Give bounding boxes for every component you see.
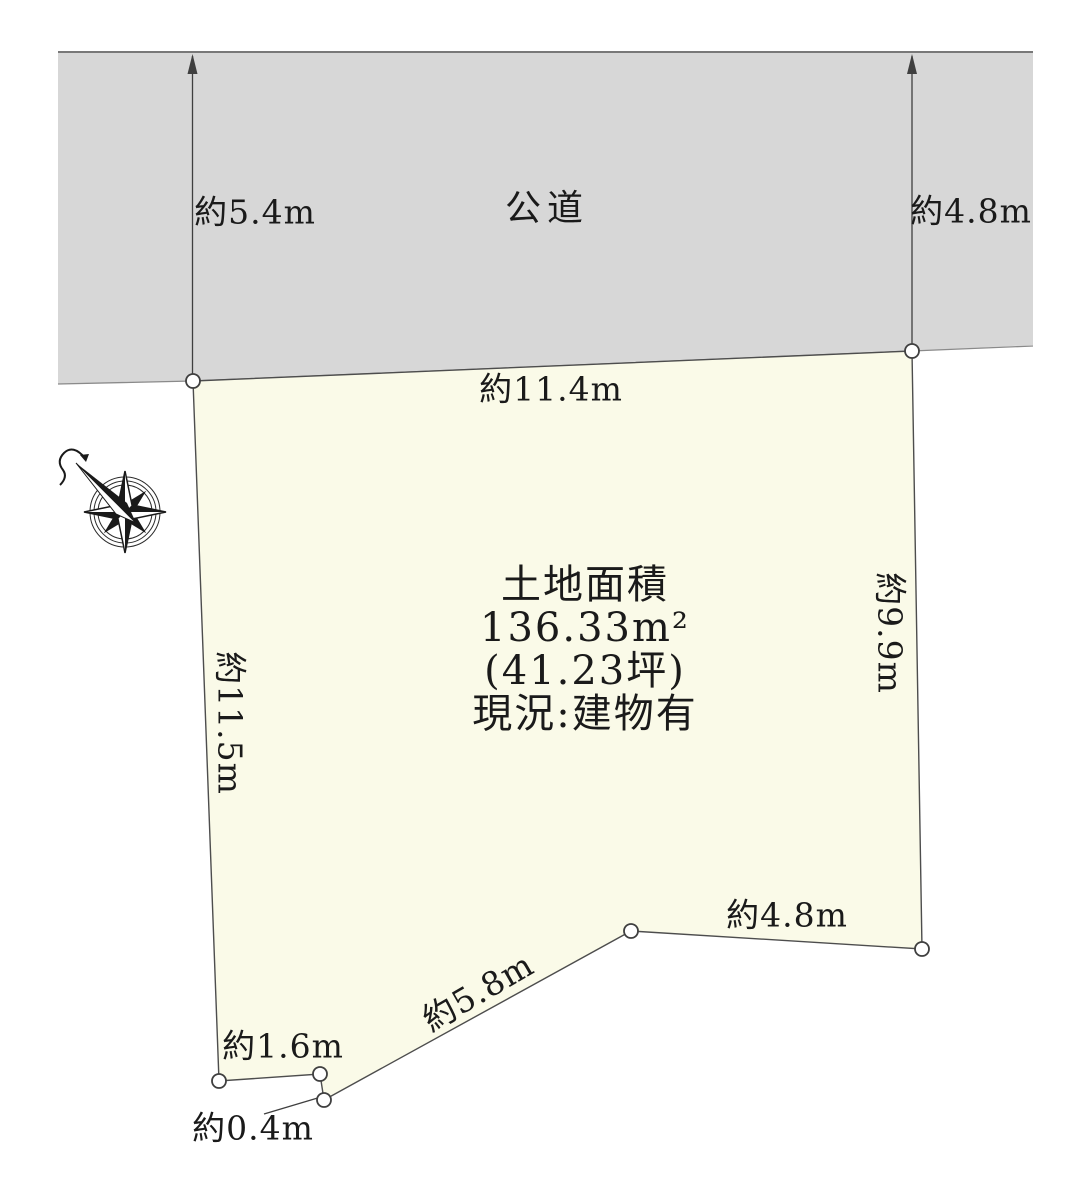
survey-point-icon: [317, 1093, 331, 1107]
survey-point-icon: [905, 344, 919, 358]
parcel-left-dimension-label: 約11.5m: [214, 651, 247, 795]
land-plot-diagram: 約5.4m 公道 約4.8m 約11.4m 約9.9m 約11.5m 約4.8m…: [0, 0, 1082, 1200]
parcel-bottom-left-dimension-label: 約1.6m: [222, 1030, 344, 1063]
survey-point-icon: [186, 374, 200, 388]
parcel-status: 現況:建物有: [472, 693, 697, 736]
survey-point-icon: [212, 1074, 226, 1088]
parcel-top-dimension-label: 約11.4m: [479, 373, 623, 406]
compass-rose-icon: [60, 449, 168, 554]
survey-point-icon: [313, 1067, 327, 1081]
survey-point-icon: [624, 924, 638, 938]
parcel-bottom-right-dimension-label: 約4.8m: [726, 899, 848, 932]
road-width-left-label: 約5.4m: [194, 196, 316, 229]
parcel-area-m2: 136.33m²: [472, 607, 697, 650]
parcel-right-dimension-label: 約9.9m: [874, 572, 907, 694]
parcel-notch-dimension-label: 約0.4m: [192, 1112, 314, 1145]
parcel-info-block: 土地面積 136.33m² (41.23坪) 現況:建物有: [472, 564, 697, 736]
road-name-label: 公道: [505, 191, 589, 227]
parcel-area-tsubo: (41.23坪): [472, 650, 697, 693]
road-width-right-label: 約4.8m: [910, 195, 1032, 228]
parcel-area-title: 土地面積: [472, 564, 697, 607]
survey-point-icon: [915, 942, 929, 956]
